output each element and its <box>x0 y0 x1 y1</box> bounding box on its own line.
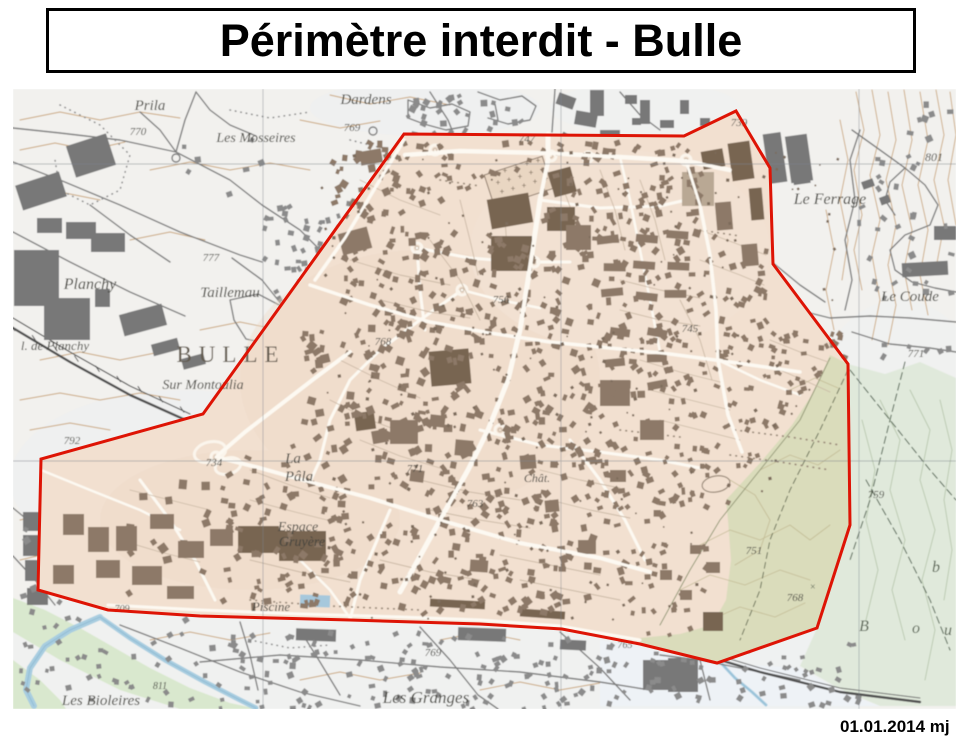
svg-text:Les Bioleires: Les Bioleires <box>61 693 140 709</box>
svg-text:Chât.: Chât. <box>524 471 550 485</box>
svg-text:+: + <box>529 168 534 177</box>
svg-text:Planchy: Planchy <box>63 276 117 293</box>
svg-text:770: 770 <box>130 126 147 138</box>
svg-text:768: 768 <box>375 336 392 348</box>
svg-text:Taillemau: Taillemau <box>200 285 259 301</box>
svg-text:La: La <box>284 451 301 467</box>
svg-text:Les Mosseires: Les Mosseires <box>215 131 296 146</box>
svg-text:l. de Planchy: l. de Planchy <box>21 338 89 353</box>
svg-text:+: + <box>533 177 538 186</box>
svg-text:Dardens: Dardens <box>339 92 391 108</box>
svg-text:+: + <box>507 175 512 184</box>
svg-text:Sur Montoulia: Sur Montoulia <box>162 378 243 393</box>
svg-text:792: 792 <box>64 435 81 447</box>
svg-text:+: + <box>503 166 508 175</box>
svg-text:Espace: Espace <box>277 520 318 535</box>
svg-text:B: B <box>859 618 869 635</box>
svg-text:+: + <box>496 178 501 187</box>
svg-text:Le Coude: Le Coude <box>880 289 939 305</box>
svg-text:756: 756 <box>493 294 510 306</box>
svg-text:769: 769 <box>425 647 442 659</box>
svg-text:759: 759 <box>868 489 885 501</box>
svg-text:Pâla: Pâla <box>284 469 313 485</box>
svg-text:734: 734 <box>206 457 223 469</box>
svg-text:+: + <box>511 184 516 193</box>
svg-text:777: 777 <box>203 252 220 264</box>
svg-text:+: + <box>522 181 527 190</box>
svg-text:BULLE: BULLE <box>176 342 285 367</box>
svg-text:768: 768 <box>787 592 804 604</box>
svg-text:+: + <box>518 172 523 181</box>
svg-text:o: o <box>912 620 920 637</box>
svg-text:×: × <box>810 582 816 593</box>
svg-text:Prila: Prila <box>134 98 166 114</box>
svg-text:801: 801 <box>925 150 943 164</box>
svg-text:745: 745 <box>682 323 699 335</box>
svg-text:763: 763 <box>467 498 484 510</box>
svg-text:751: 751 <box>746 545 763 557</box>
svg-text:Le Ferrage: Le Ferrage <box>793 191 866 208</box>
svg-text:811: 811 <box>153 681 167 692</box>
svg-text:u: u <box>944 622 952 639</box>
svg-text:771: 771 <box>908 348 925 360</box>
svg-text:771: 771 <box>407 463 424 475</box>
svg-text:b: b <box>932 559 940 576</box>
svg-text:Gruyère: Gruyère <box>279 535 325 550</box>
svg-text:Les Granges: Les Granges <box>382 688 470 707</box>
svg-text:Piscine: Piscine <box>251 599 290 614</box>
svg-text:769: 769 <box>344 122 361 134</box>
svg-text:+: + <box>500 187 505 196</box>
